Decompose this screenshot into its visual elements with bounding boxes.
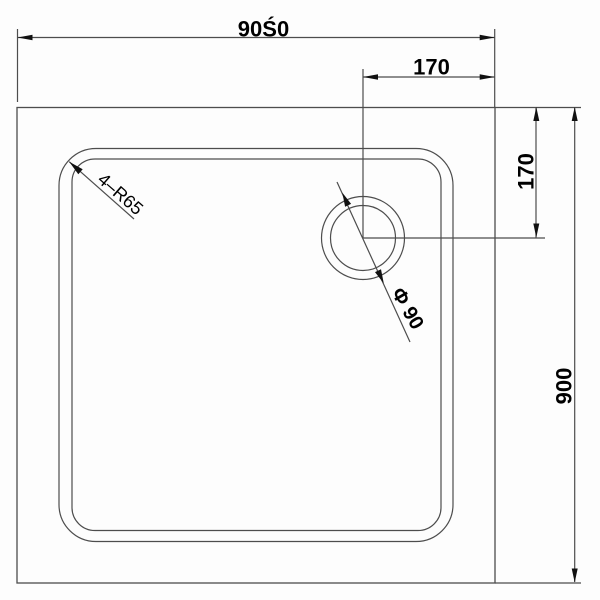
svg-text:4–R65: 4–R65 (94, 169, 147, 219)
svg-text:170: 170 (413, 55, 450, 80)
svg-text:90Ś0: 90Ś0 (238, 17, 289, 42)
svg-text:900: 900 (551, 368, 576, 405)
svg-text:170: 170 (514, 153, 539, 190)
svg-text:Φ 90: Φ 90 (387, 284, 428, 333)
